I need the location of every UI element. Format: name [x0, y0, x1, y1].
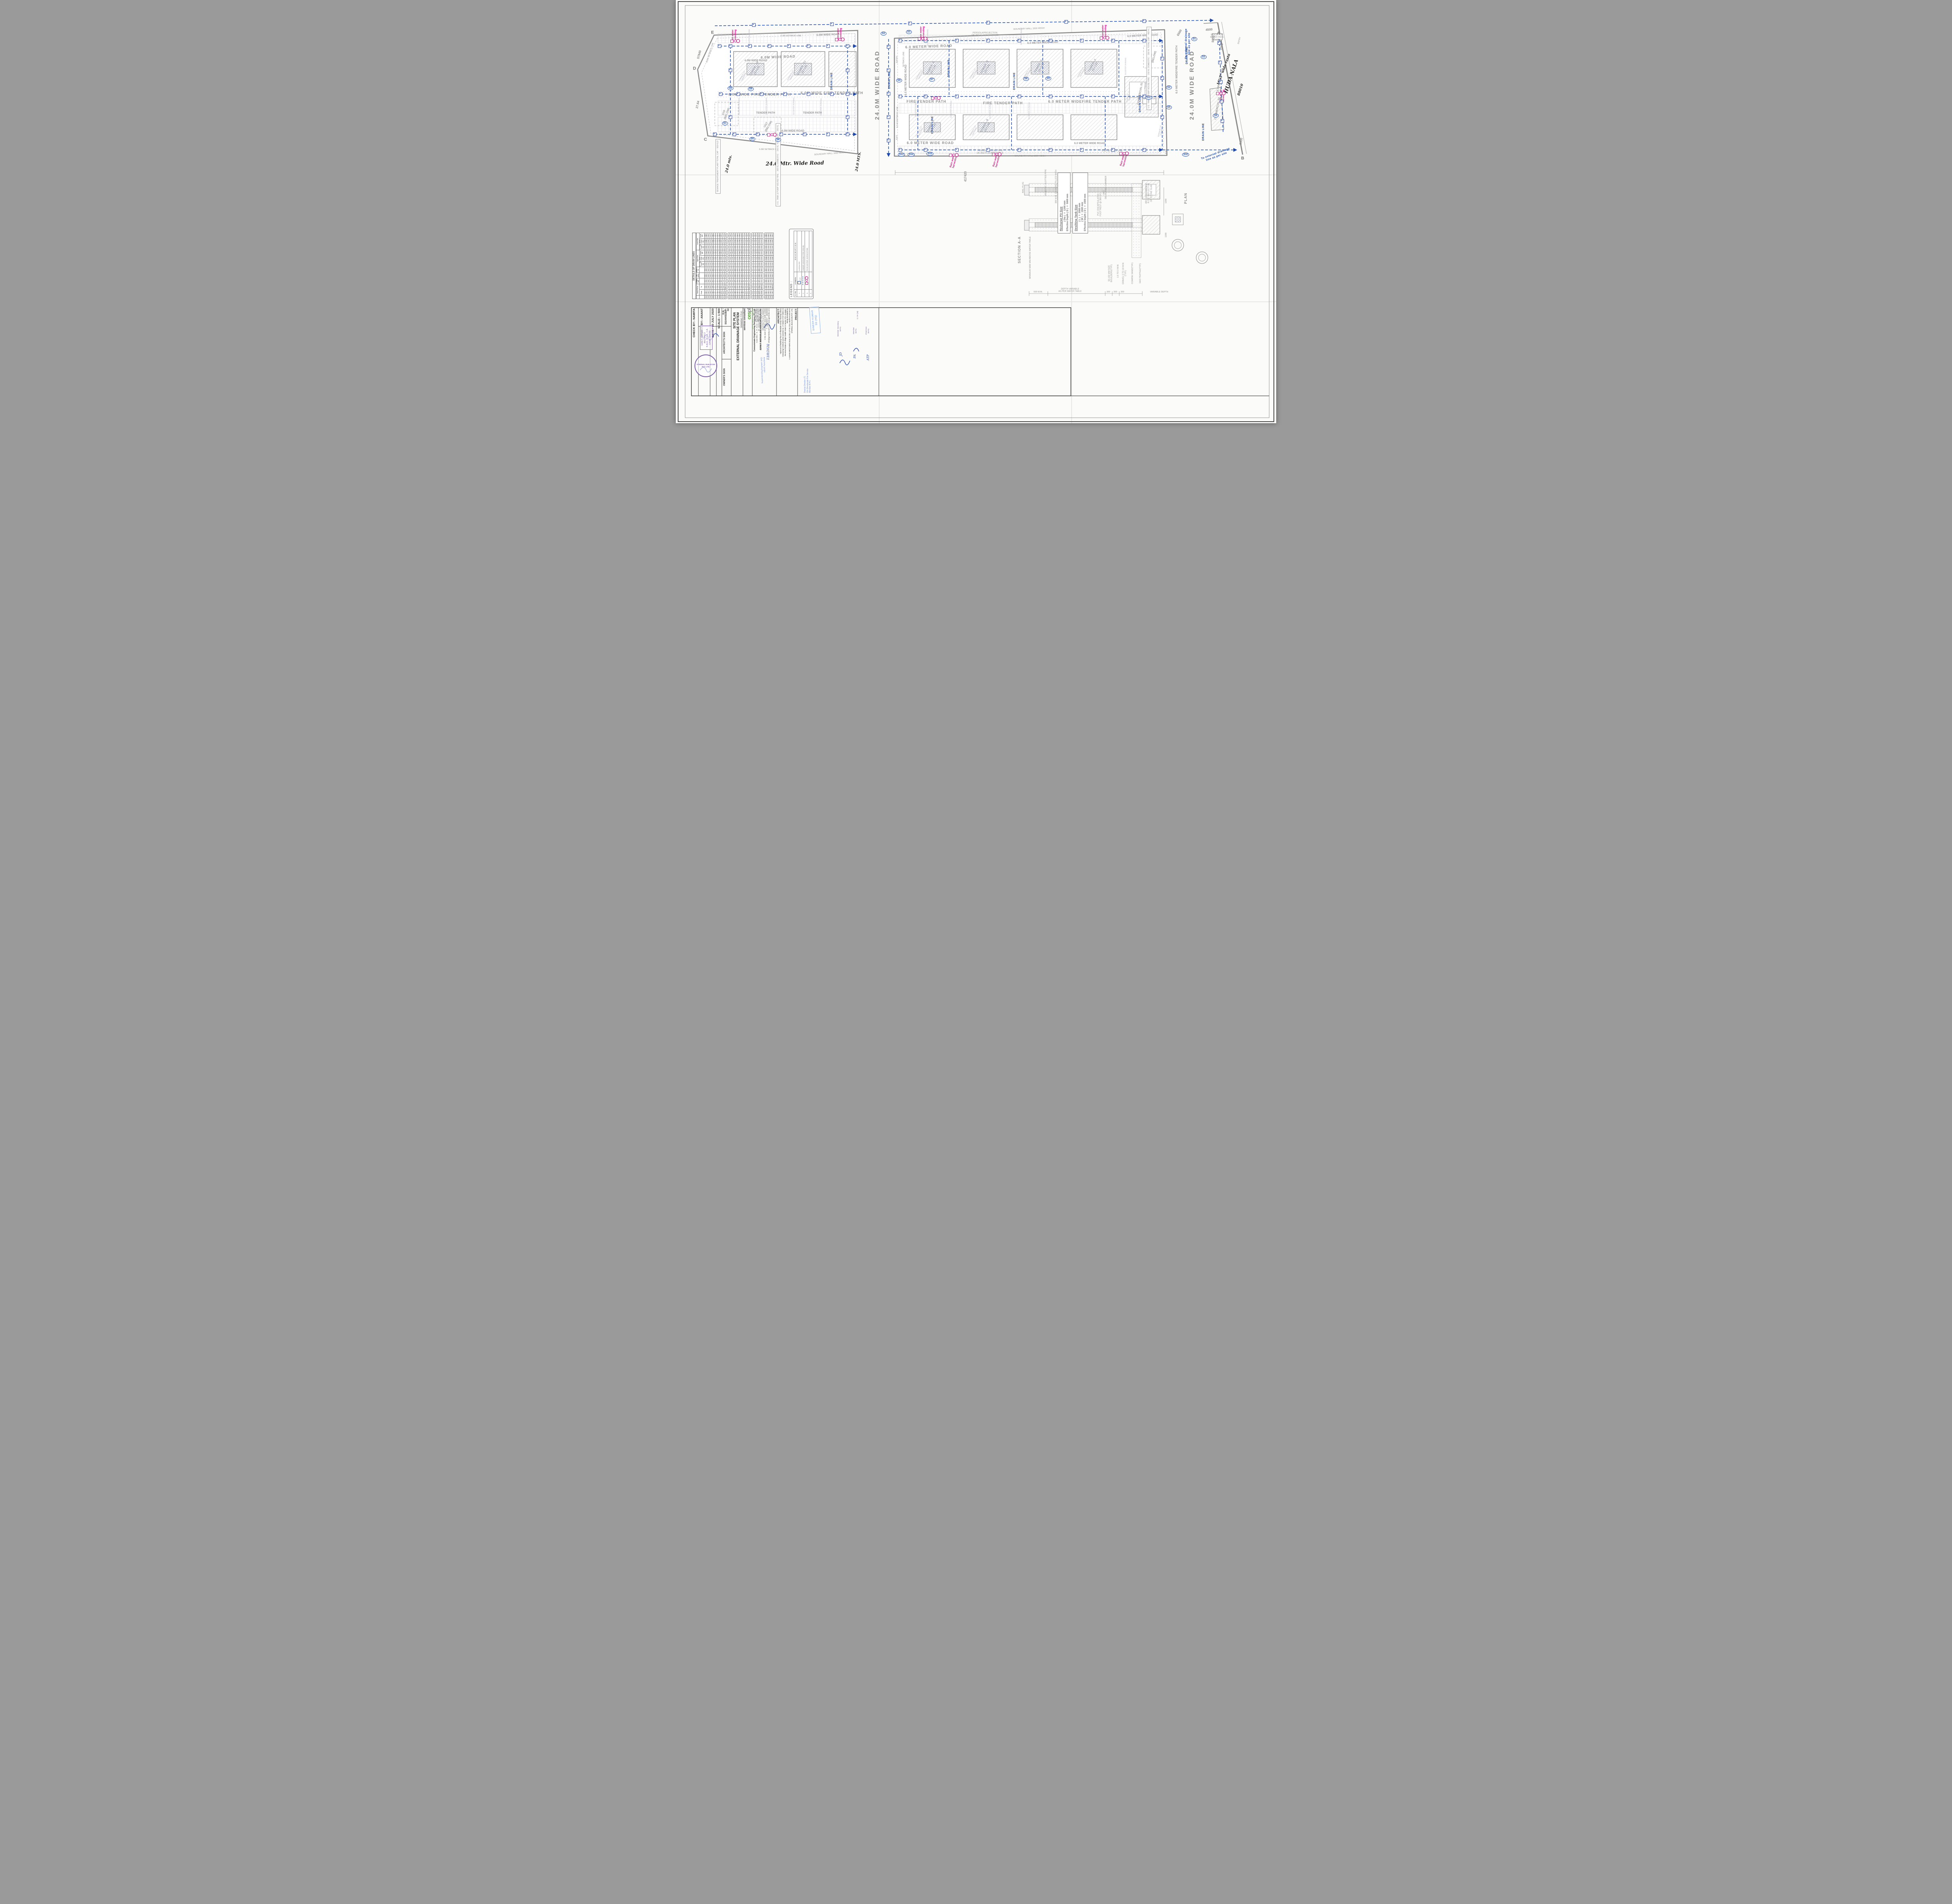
dimension-417420 — [895, 170, 1164, 175]
approval-chairman: Chairman B.P.C. — [866, 324, 870, 337]
legend-symbol-icon — [805, 277, 808, 285]
legend-row: 3. RAIN WATER HARVESTING — [805, 231, 809, 297]
initials-jd: JD — [839, 352, 842, 356]
desilting-length: ( L ) = 2000 mm — [1078, 175, 1081, 231]
architect-info-cell: gpm GIAN P. MATHUR AND ASSOCIATES (P) LT… — [753, 308, 776, 395]
project-label: PROJECT: — [795, 307, 798, 395]
stamp-date-handwritten: 13/8/2020 — [766, 344, 770, 360]
legend-col-symbol: SYMBOL — [794, 272, 797, 290]
middle-parcel — [894, 30, 1167, 156]
approval-member-secretary: Member Secretary B.P.C. — [837, 320, 842, 337]
scale-cell: SCALE:- 1:500 — [717, 306, 721, 395]
legend-row: 4. — [809, 231, 812, 297]
recharge-pit-size-box: Recharge Pit Size ( Dia ) = 1200 mm Effe… — [1058, 173, 1070, 233]
recharge-well-section — [1024, 180, 1208, 296]
legend-symbol-icon — [798, 281, 801, 284]
drain-table-title: DETAILS OF DRAIN LINES — [692, 233, 696, 299]
dinesh-kumar-stamp: DINESH KUMAR SD (HQ) — [809, 306, 821, 334]
drain-row: 05D5OUT 4104006000.00-0.890.890.00-0.900… — [772, 233, 774, 299]
date-cell: DATE:- 30 JULY 2020 — [711, 306, 714, 395]
drawing-title-1: SITE PLAN — [733, 312, 736, 395]
deputy-director-note: Deputy Director (T) O/o Directorate Fire… — [804, 350, 812, 393]
owner-sign-label: OWNER'S SIGN — [723, 360, 726, 394]
project-text: Approval of Building Plan of Affordable … — [780, 308, 793, 395]
legend-col-desc: D E S C R I P T I O N — [794, 231, 797, 272]
approval-member: Member B.P.C. — [853, 324, 858, 337]
drain-row: 12D12OUT 1104006000.00-1.021.020.00-1.04… — [725, 233, 727, 299]
initials-atp: ATP — [866, 354, 870, 361]
initials-pa: PA — [853, 354, 857, 358]
drawn-by-cell: DRAWN BY:- ANANT — [700, 306, 704, 395]
drain-table-subheader: FromTo C.P. Top Level (m)Invert Level (m… — [700, 233, 704, 299]
legend-row: 2. UNDER GROUND PIPE DRAIN — [802, 231, 805, 297]
approvals-cell: DINESH KUMAR SD (HQ) Member Secretary B.… — [798, 308, 878, 395]
recharge-depth: Effective Depth ( D ) = 5000 mm — [1066, 175, 1069, 231]
drawing-number-cell: D.N. - SG/AH/SUB/P-02 — [723, 308, 730, 326]
legend-title: LEGEND : — [790, 231, 793, 297]
legend-row: 1. C.P. CATCH PIT — [797, 231, 802, 297]
legend-symbol-icon — [803, 276, 803, 285]
desilting-tank-size-box: Desilting Tank Size ( L ) = 2000 mm ( W … — [1072, 173, 1088, 233]
sternal-buildcon-stamp: STERNAL BUILDCON PVT. LTD. — [695, 354, 717, 377]
drawing-sheet: 24.0M WIDE ROAD24.0M WIDE ROAD6.0M WIDE … — [676, 0, 1276, 423]
legend-col-sno: S. No. — [794, 290, 797, 297]
drawing-title-label: DRAWING TITLE : — [741, 308, 743, 395]
left-parcel — [698, 30, 858, 154]
right-area — [1204, 22, 1247, 155]
drain-row: 12D12OUT 2104006000.00-1.231.230.00-1.25… — [748, 233, 750, 299]
recharge-dia: ( Dia ) = 1200 mm — [1063, 175, 1066, 231]
architect-sign-label: ARCHITECT'S SIGN — [723, 327, 726, 358]
recharge-title: Recharge Pit Size — [1059, 175, 1063, 231]
drain-lines-table: DETAILS OF DRAIN LINES Catch Pit No. Len… — [692, 233, 774, 299]
legend: LEGEND : S. No. SYMBOL D E S C R I P T I… — [789, 229, 814, 299]
gian-mathur-stamp: GIAN P. MATHUR ARCHITECT B.Arch., M.C.A.… — [700, 326, 712, 350]
check-by-cell: CHECK BY:- NAMITA — [692, 306, 696, 395]
services-consultant-cell: services consultant cespl Working Togeth… — [744, 308, 752, 395]
desilting-width: ( W ) = 1500 mm — [1081, 175, 1084, 231]
drawing-title-cell: SITE PLAN EXTERNAL DRAINAGE SYSTEM DRAWI… — [733, 308, 743, 395]
desilting-title: Desilting Tank Size — [1074, 175, 1078, 231]
gpm-logo: gpm — [753, 308, 760, 395]
desilting-depth: Effective Depth ( D ) = 1500 mm — [1084, 175, 1086, 231]
drawing-title-2: EXTERNAL DRAINAGE SYSTEM — [736, 312, 740, 395]
drain-row: 18D18OUT 3104006000.00-1.101.100.00-1.11… — [761, 233, 763, 299]
cespl-logo: cespl — [746, 308, 752, 395]
approval-ctp: C.T.P. (M) — [857, 309, 859, 321]
hsvp-stamp: Superintending Engineer (HQ) HSVP, Panch… — [760, 357, 766, 384]
project-cell: Approval of Building Plan of Affordable … — [780, 308, 793, 395]
